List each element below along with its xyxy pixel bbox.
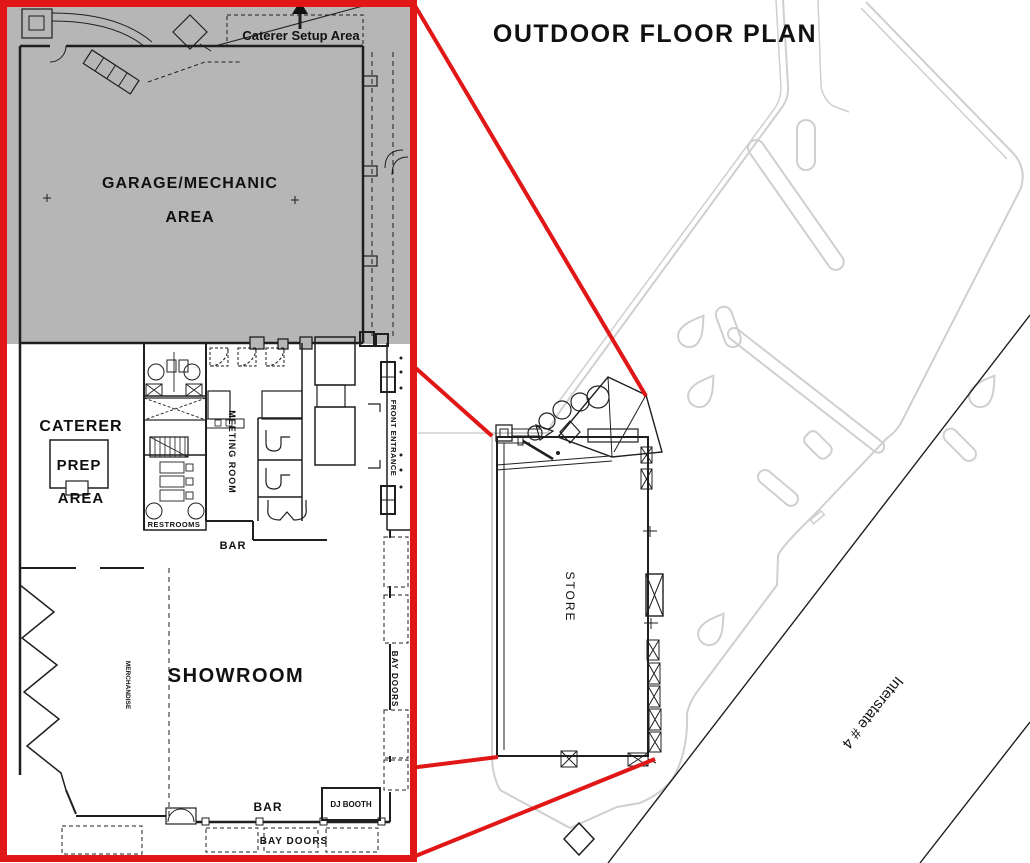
garage-label-line2: AREA — [165, 209, 214, 226]
interstate-lines — [608, 315, 1030, 863]
site-plan: Interstate # 4 — [418, 0, 1030, 863]
bar-lower-label: BAR — [254, 800, 283, 814]
store-label: STORE — [563, 571, 577, 622]
parking-islands — [674, 120, 1004, 649]
restrooms-label: RESTROOMS — [148, 520, 201, 529]
page-title: OUTDOOR FLOOR PLAN — [493, 20, 817, 48]
floor-plan-page: Interstate # 4 — [0, 0, 1030, 863]
meeting-room-label: MEETING ROOM — [227, 410, 237, 494]
bar-upper-label: BAR — [220, 540, 247, 552]
showroom-label: SHOWROOM — [168, 665, 304, 687]
caterer-prep-line1: CATERER — [39, 418, 122, 435]
parking-lot-outlines — [418, 0, 1023, 828]
caterer-prep-line2: PREP — [57, 457, 102, 474]
floor-plan-canvas: Interstate # 4 — [0, 0, 1030, 863]
callout-leader-lines — [410, 4, 655, 857]
tree-outline — [528, 386, 609, 440]
caterer-setup-label: Caterer Setup Area — [242, 28, 360, 43]
front-entrance-label: FRONT ENTRANCE — [389, 400, 398, 477]
garage-label-line1: GARAGE/MECHANIC — [102, 175, 278, 192]
interstate-label: Interstate # 4 — [838, 673, 906, 752]
bay-doors-bottom-label: BAY DOORS — [260, 836, 328, 847]
merchandise-label: MERCHANDISE — [124, 661, 131, 710]
dj-booth-label: DJ BOOTH — [330, 800, 372, 809]
store-building: STORE — [496, 377, 663, 767]
caterer-prep-line3: AREA — [58, 490, 105, 507]
inset-plan: Caterer Setup Area GARAGE/MECHANIC AREA — [6, 1, 412, 857]
bay-doors-right-label: BAY DOORS — [390, 651, 399, 708]
